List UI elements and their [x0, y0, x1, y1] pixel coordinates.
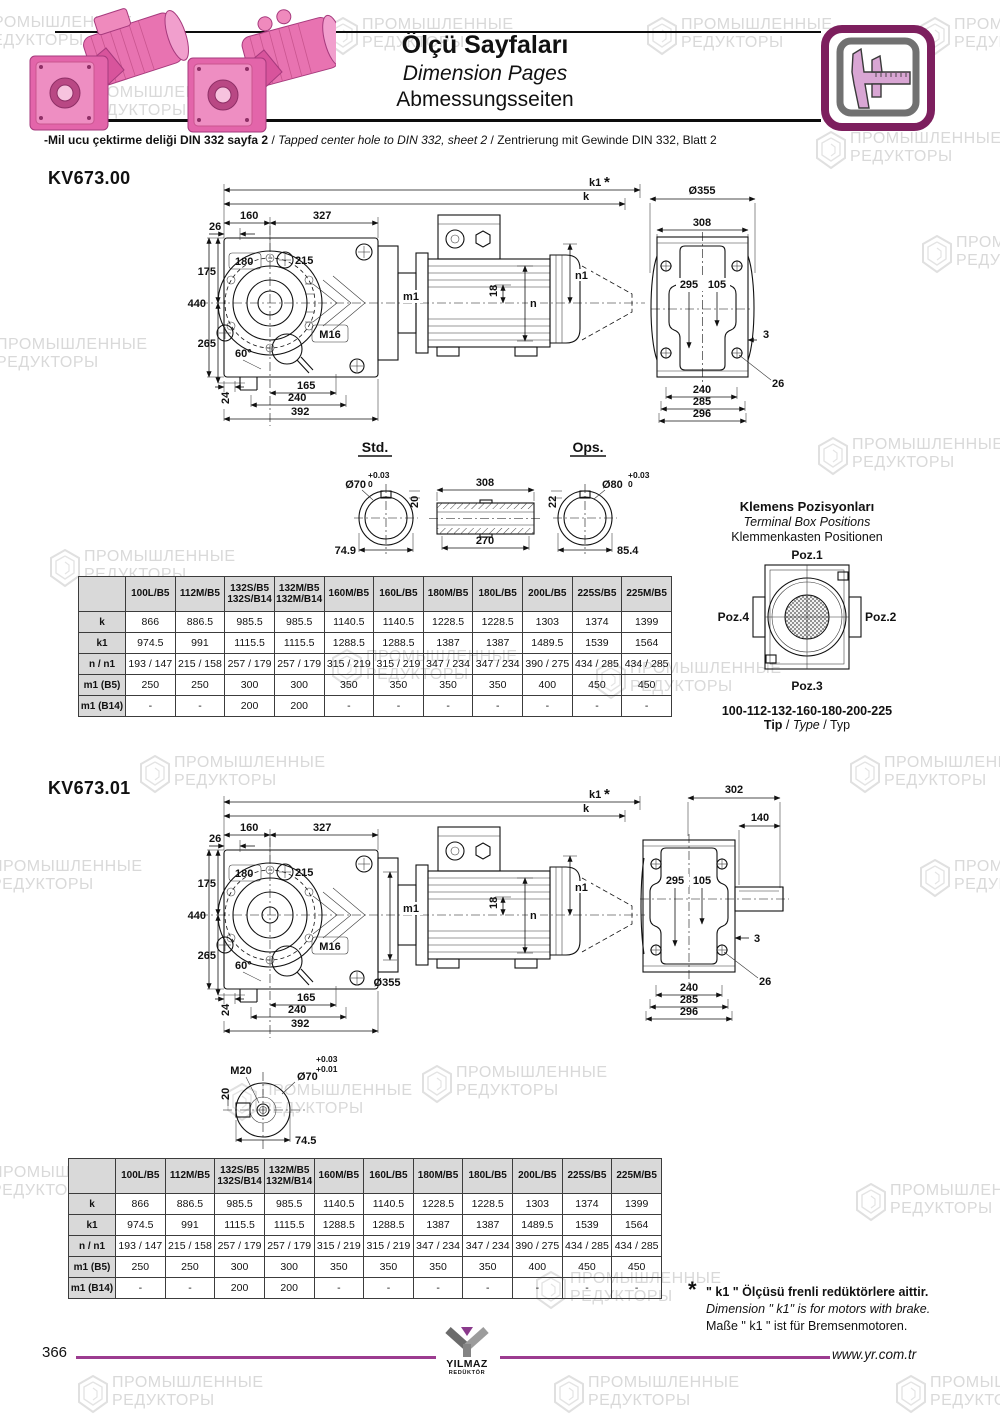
table-cell: 1115.5: [215, 1215, 265, 1236]
kv67300-side-drawing: Ø355 308 295 105 3 26 240 285 296: [645, 178, 800, 430]
table-cell: 400: [523, 675, 573, 696]
kv67301-shaft-detail-drawing: M20 20 Ø70 +0.03 +0.01 74.5: [185, 1040, 430, 1155]
svg-text:105: 105: [693, 875, 711, 887]
table-cell: 1564: [622, 633, 672, 654]
table-cell: 315 / 219: [364, 1236, 414, 1257]
table-cell: 350: [463, 1257, 513, 1278]
svg-text:24: 24: [220, 1003, 232, 1016]
column-header: 160L/B5: [364, 1159, 414, 1194]
column-header: 200L/B5: [523, 577, 573, 612]
svg-text:302: 302: [725, 784, 743, 796]
dimension-table-kv67301: 100L/B5112M/B5132S/B5 132S/B14132M/B5 13…: [68, 1158, 662, 1299]
table-cell: 1288.5: [324, 633, 374, 654]
column-header: 132S/B5 132S/B14: [225, 577, 275, 612]
svg-text:327: 327: [313, 210, 331, 222]
column-header: 200L/B5: [513, 1159, 563, 1194]
svg-text:Ø80: Ø80: [602, 479, 623, 491]
table-cell: 350: [473, 675, 523, 696]
watermark-text: ПРОМЫШЛЕННЫЕ РЕДУКТОРЫ: [890, 1182, 1000, 1218]
table-cell: 985.5: [225, 612, 275, 633]
table-cell: 200: [264, 1278, 314, 1299]
watermark-hexagon-icon: [918, 858, 952, 898]
watermark-text: ПРОМЫШЛЕННЫЕ РЕДУКТОРЫ: [0, 858, 143, 894]
table-cell: -: [413, 1278, 463, 1299]
row-label: m1 (B5): [79, 675, 126, 696]
svg-text:M16: M16: [319, 329, 340, 341]
svg-text:18: 18: [488, 285, 500, 297]
table-cell: 350: [374, 675, 424, 696]
svg-text:240: 240: [693, 384, 711, 396]
table-cell: 434 / 285: [622, 654, 672, 675]
watermark-text: ПРОМЫШЛЕННЫЕ РЕДУКТОРЫ: [956, 234, 1000, 270]
watermark-hexagon-icon: [48, 548, 82, 588]
terminal-type-line: Tip / Type / Typ: [712, 718, 902, 732]
svg-text:327: 327: [313, 822, 331, 834]
watermark: ПРОМЫШЛЕННЫЕ РЕДУКТОРЫ: [920, 234, 1000, 274]
column-header: 225S/B5: [562, 1159, 612, 1194]
table-cell: 1387: [423, 633, 473, 654]
row-label: n / n1: [79, 654, 126, 675]
svg-text:74.9: 74.9: [335, 545, 356, 557]
table-cell: 1228.5: [473, 612, 523, 633]
svg-text:k: k: [583, 191, 590, 203]
watermark: ПРОМЫШЛЕННЫЕ РЕДУКТОРЫ: [552, 1374, 740, 1414]
terminal-box-positions: Klemens Pozisyonları Terminal Box Positi…: [712, 499, 902, 732]
svg-text:k1: k1: [589, 789, 601, 801]
column-header: 132S/B5 132S/B14: [215, 1159, 265, 1194]
table-cell: 1303: [513, 1194, 563, 1215]
svg-text:18: 18: [488, 897, 500, 909]
table-cell: 193 / 147: [126, 654, 176, 675]
watermark: ПРОМЫШЛЕННЫЕ РЕДУКТОРЫ: [894, 1374, 1000, 1414]
svg-text:M16: M16: [319, 941, 340, 953]
table-cell: 390 / 275: [513, 1236, 563, 1257]
table-row: m1 (B14)--200200-------: [69, 1278, 662, 1299]
gearmotor-unit-2: [188, 4, 336, 132]
svg-text:YILMAZ: YILMAZ: [446, 1358, 488, 1370]
svg-text:240: 240: [288, 1004, 306, 1016]
svg-text:+0.01: +0.01: [316, 1064, 338, 1074]
svg-text:0: 0: [628, 479, 633, 489]
table-cell: -: [324, 696, 374, 717]
table-cell: -: [562, 1278, 612, 1299]
table-cell: 257 / 179: [225, 654, 275, 675]
watermark-text: ПРОМЫШЛЕННЫЕ РЕДУКТОРЫ: [852, 436, 1000, 472]
watermark: ПРОМЫШЛЕННЫЕ РЕДУКТОРЫ: [76, 1374, 264, 1414]
svg-text:24: 24: [220, 391, 232, 404]
table-cell: -: [175, 696, 225, 717]
dimension-table-kv67300: 100L/B5112M/B5132S/B5 132S/B14132M/B5 13…: [78, 576, 672, 717]
watermark-text: ПРОМЫШЛЕННЫЕ РЕДУКТОРЫ: [456, 1064, 608, 1100]
yilmaz-logo: YILMAZ REDÜKTÖR: [438, 1326, 496, 1376]
table-cell: 1140.5: [314, 1194, 364, 1215]
table-cell: 257 / 179: [215, 1236, 265, 1257]
din-note-de: Zentrierung mit Gewinde DIN 332, Blatt 2: [497, 133, 716, 147]
table-cell: 390 / 275: [523, 654, 573, 675]
svg-text:3: 3: [754, 933, 760, 945]
table-cell: 315 / 219: [374, 654, 424, 675]
table-cell: 450: [612, 1257, 662, 1278]
table-cell: 200: [215, 1278, 265, 1299]
page-title-block: Ölçü Sayfaları Dimension Pages Abmessung…: [330, 30, 640, 114]
svg-text:265: 265: [198, 338, 216, 350]
svg-text:140: 140: [751, 812, 769, 824]
svg-text:m1: m1: [403, 291, 419, 303]
kv67301-front-drawing: 180 215 M16 60° k1 * k 160: [185, 788, 650, 1046]
table-cell: 200: [274, 696, 324, 717]
svg-text:26: 26: [759, 976, 771, 988]
row-label: k: [79, 612, 126, 633]
table-cell: 1140.5: [374, 612, 424, 633]
model-heading-kv67301: KV673.01: [48, 778, 130, 799]
table-cell: 347 / 234: [473, 654, 523, 675]
watermark-hexagon-icon: [854, 1182, 888, 1222]
watermark-text: ПРОМЫШЛЕННЫЕ РЕДУКТОРЫ: [112, 1374, 264, 1410]
svg-text:240: 240: [680, 982, 698, 994]
model-heading-kv67300: KV673.00: [48, 168, 130, 189]
watermark-text: ПРОМЫШЛЕННЫЕ РЕДУКТОРЫ: [850, 130, 1000, 166]
table-cell: -: [572, 696, 622, 717]
row-label: k: [69, 1194, 116, 1215]
table-row: m1 (B5)250250300300350350350350400450450: [79, 675, 672, 696]
table-cell: 347 / 234: [413, 1236, 463, 1257]
table-cell: 886.5: [165, 1194, 215, 1215]
svg-text:285: 285: [680, 994, 698, 1006]
table-cell: -: [126, 696, 176, 717]
footnote-de: Maße " k1 " ist für Bremsenmotoren.: [706, 1318, 986, 1335]
svg-text:105: 105: [708, 279, 726, 291]
table-cell: 450: [622, 675, 672, 696]
watermark-hexagon-icon: [848, 754, 882, 794]
svg-text:175: 175: [198, 266, 216, 278]
column-header: 160L/B5: [374, 577, 424, 612]
watermark-hexagon-icon: [76, 1374, 110, 1414]
table-cell: 347 / 234: [463, 1236, 513, 1257]
svg-text:M20: M20: [230, 1065, 251, 1077]
din-note-en: Tapped center hole to DIN 332, sheet 2: [278, 133, 487, 147]
row-label: n / n1: [69, 1236, 116, 1257]
poz4-label: Poz.4: [718, 610, 750, 624]
watermark: ПРОМЫШЛЕННЫЕ РЕДУКТОРЫ: [854, 1182, 1000, 1222]
svg-text:60°: 60°: [235, 960, 252, 972]
svg-text:26: 26: [772, 378, 784, 390]
watermark-hexagon-icon: [645, 16, 679, 56]
table-cell: 350: [324, 675, 374, 696]
table-cell: 450: [562, 1257, 612, 1278]
svg-text:392: 392: [291, 1018, 309, 1030]
poz1-label: Poz.1: [791, 548, 823, 562]
footnote-en: Dimension " k1" is for motors with brake…: [706, 1301, 986, 1318]
table-cell: 1374: [562, 1194, 612, 1215]
svg-text:+0.03: +0.03: [316, 1054, 338, 1064]
svg-text:160: 160: [240, 210, 258, 222]
table-cell: 350: [423, 675, 473, 696]
gearmotor-unit-1: [30, 4, 193, 130]
watermark-text: ПРОМЫШЛЕННЫЕ РЕДУКТОРЫ: [174, 754, 326, 790]
svg-text:Ø355: Ø355: [689, 185, 716, 197]
din-note-tr: -Mil ucu çektirme deliği DIN 332 sayfa 2: [44, 133, 268, 147]
table-cell: -: [374, 696, 424, 717]
column-header: 160M/B5: [314, 1159, 364, 1194]
svg-text:k: k: [583, 803, 590, 815]
svg-text:265: 265: [198, 950, 216, 962]
svg-text:270: 270: [476, 535, 494, 547]
svg-text:308: 308: [476, 477, 494, 489]
svg-text:296: 296: [680, 1006, 698, 1018]
table-cell: 866: [126, 612, 176, 633]
page-title-en: Dimension Pages: [330, 60, 640, 87]
page-number: 366: [42, 1344, 67, 1361]
table-row: n / n1193 / 147215 / 158257 / 179257 / 1…: [69, 1236, 662, 1257]
svg-text:n1: n1: [575, 270, 588, 282]
gearmotor-photos: [26, 4, 336, 138]
svg-text:*: *: [604, 176, 610, 191]
table-cell: 1387: [463, 1215, 513, 1236]
table-cell: 1387: [473, 633, 523, 654]
watermark-text: ПРОМЫШЛЕННЫЕ РЕДУКТОРЫ: [954, 858, 1000, 894]
table-cell: 350: [413, 1257, 463, 1278]
svg-text:26: 26: [209, 833, 221, 845]
column-header: 180L/B5: [473, 577, 523, 612]
table-cell: 200: [225, 696, 275, 717]
terminal-position-drawing: Poz.1 Poz.2 Poz.3 Poz.4: [717, 547, 897, 697]
ops-label: Ops.: [572, 439, 603, 455]
svg-text:k1: k1: [589, 177, 601, 189]
svg-text:285: 285: [693, 396, 711, 408]
table-cell: 1399: [622, 612, 672, 633]
watermark: ПРОМЫШЛЕННЫЕ РЕДУКТОРЫ: [645, 16, 833, 56]
table-cell: -: [523, 696, 573, 717]
table-cell: 991: [165, 1215, 215, 1236]
row-label: k1: [69, 1215, 116, 1236]
svg-text:60°: 60°: [235, 348, 252, 360]
table-cell: 434 / 285: [562, 1236, 612, 1257]
column-header: 225M/B5: [612, 1159, 662, 1194]
svg-text:REDÜKTÖR: REDÜKTÖR: [449, 1369, 486, 1376]
table-cell: -: [423, 696, 473, 717]
svg-text:180: 180: [235, 868, 253, 880]
column-header: 160M/B5: [324, 577, 374, 612]
watermark-text: ПРОМЫШЛЕННЫЕ РЕДУКТОРЫ: [588, 1374, 740, 1410]
watermark-hexagon-icon: [138, 754, 172, 794]
svg-text:n1: n1: [575, 882, 588, 894]
watermark: ПРОМЫШЛЕННЫЕ РЕДУКТОРЫ: [0, 858, 143, 898]
row-label: m1 (B5): [69, 1257, 116, 1278]
svg-text:74.5: 74.5: [295, 1135, 316, 1147]
footnote: * " k1 " Ölçüsü frenli redüktörlere aitt…: [690, 1284, 986, 1335]
svg-text:215: 215: [295, 867, 313, 879]
column-header: 225S/B5: [572, 577, 622, 612]
svg-text:295: 295: [666, 875, 684, 887]
table-cell: -: [165, 1278, 215, 1299]
svg-text:240: 240: [288, 392, 306, 404]
page-title-de: Abmessungsseiten: [330, 87, 640, 113]
svg-text:Ø355: Ø355: [374, 977, 401, 989]
table-cell: 1115.5: [274, 633, 324, 654]
table-cell: -: [463, 1278, 513, 1299]
table-cell: 985.5: [264, 1194, 314, 1215]
table-cell: 1539: [572, 633, 622, 654]
table-cell: 400: [513, 1257, 563, 1278]
footer-rule-left: [76, 1356, 436, 1359]
table-corner-cell: [69, 1159, 116, 1194]
table-cell: 250: [116, 1257, 166, 1278]
watermark: ПРОМЫШЛЕННЫЕ РЕДУКТОРЫ: [848, 754, 1000, 794]
terminal-sizes: 100-112-132-160-180-200-225: [712, 704, 902, 718]
watermark-hexagon-icon: [552, 1374, 586, 1414]
svg-text:392: 392: [291, 406, 309, 418]
table-cell: 1303: [523, 612, 573, 633]
svg-text:26: 26: [209, 221, 221, 233]
svg-text:m1: m1: [403, 903, 419, 915]
row-label: m1 (B14): [79, 696, 126, 717]
table-cell: 1288.5: [374, 633, 424, 654]
catalog-page: Ölçü Sayfaları Dimension Pages Abmessung…: [0, 0, 1000, 1414]
column-header: 180M/B5: [413, 1159, 463, 1194]
table-cell: 193 / 147: [116, 1236, 166, 1257]
table-cell: 1228.5: [423, 612, 473, 633]
table-cell: 991: [175, 633, 225, 654]
table-cell: 300: [215, 1257, 265, 1278]
watermark-hexagon-icon: [920, 234, 954, 274]
table-cell: 974.5: [116, 1215, 166, 1236]
table-cell: 257 / 179: [264, 1236, 314, 1257]
table-cell: 300: [225, 675, 275, 696]
column-header: 132M/B5 132M/B14: [264, 1159, 314, 1194]
row-label: k1: [79, 633, 126, 654]
table-cell: 1115.5: [225, 633, 275, 654]
table-cell: 866: [116, 1194, 166, 1215]
table-cell: 1140.5: [364, 1194, 414, 1215]
column-header: 180M/B5: [423, 577, 473, 612]
column-header: 100L/B5: [126, 577, 176, 612]
svg-text:308: 308: [693, 217, 711, 229]
kv67300-shaft-options-drawing: Std. 20 Ø70 +0.03 0 74.9 308 270 Ops. 22: [330, 438, 715, 565]
table-cell: 350: [314, 1257, 364, 1278]
std-label: Std.: [362, 439, 388, 455]
column-header: 132M/B5 132M/B14: [274, 577, 324, 612]
svg-text:165: 165: [297, 992, 315, 1004]
watermark: ПРОМЫШЛЕННЫЕ РЕДУКТОРЫ: [420, 1064, 608, 1104]
svg-text:440: 440: [188, 298, 206, 310]
table-cell: 350: [364, 1257, 414, 1278]
svg-text:n: n: [530, 910, 537, 922]
table-corner-cell: [79, 577, 126, 612]
table-cell: -: [473, 696, 523, 717]
caliper-icon: [820, 24, 936, 134]
watermark-hexagon-icon: [894, 1374, 928, 1414]
table-cell: 434 / 285: [572, 654, 622, 675]
page-title: Ölçü Sayfaları: [330, 30, 640, 60]
table-row: k1974.59911115.51115.51288.51288.5138713…: [79, 633, 672, 654]
watermark: ПРОМЫШЛЕННЫЕ РЕДУКТОРЫ: [816, 436, 1000, 476]
table-row: k866886.5985.5985.51140.51140.51228.5122…: [79, 612, 672, 633]
watermark-text: ПРОМЫШЛЕННЫЕ РЕДУКТОРЫ: [954, 16, 1000, 52]
kv67300-front-drawing: 180 215 M16 60° k1 *: [185, 176, 650, 434]
watermark-text: ПРОМЫШЛЕННЫЕ РЕДУКТОРЫ: [681, 16, 833, 52]
terminal-title-tr: Klemens Pozisyonları: [712, 499, 902, 515]
svg-text:20: 20: [220, 1088, 232, 1100]
svg-text:296: 296: [693, 408, 711, 420]
table-cell: 1288.5: [364, 1215, 414, 1236]
table-cell: -: [364, 1278, 414, 1299]
column-header: 225M/B5: [622, 577, 672, 612]
table-cell: 1387: [413, 1215, 463, 1236]
table-cell: -: [314, 1278, 364, 1299]
svg-text:0: 0: [368, 479, 373, 489]
footnote-star: *: [688, 1277, 697, 1303]
svg-text:165: 165: [297, 380, 315, 392]
table-cell: 250: [165, 1257, 215, 1278]
svg-text:20: 20: [409, 496, 421, 508]
poz3-label: Poz.3: [791, 679, 823, 693]
svg-text:3: 3: [763, 329, 769, 341]
svg-text:n: n: [530, 298, 537, 310]
footnote-tr: " k1 " Ölçüsü frenli redüktörlere aittir…: [706, 1284, 986, 1301]
table-row: n / n1193 / 147215 / 158257 / 179257 / 1…: [79, 654, 672, 675]
table-cell: 215 / 158: [175, 654, 225, 675]
terminal-title-de: Klemmenkasten Positionen: [712, 530, 902, 545]
footer-rule-right: [500, 1356, 830, 1359]
website-url: www.yr.com.tr: [832, 1347, 916, 1362]
column-header: 112M/B5: [165, 1159, 215, 1194]
table-cell: 215 / 158: [165, 1236, 215, 1257]
table-cell: 1564: [612, 1215, 662, 1236]
svg-text:215: 215: [295, 255, 313, 267]
table-cell: 985.5: [215, 1194, 265, 1215]
table-cell: 257 / 179: [274, 654, 324, 675]
table-cell: -: [612, 1278, 662, 1299]
table-cell: 434 / 285: [612, 1236, 662, 1257]
poz2-label: Poz.2: [865, 610, 897, 624]
table-cell: 1115.5: [264, 1215, 314, 1236]
table-cell: 347 / 234: [423, 654, 473, 675]
svg-text:160: 160: [240, 822, 258, 834]
svg-text:85.4: 85.4: [617, 545, 639, 557]
table-cell: 1228.5: [463, 1194, 513, 1215]
watermark-text: ПРОМЫШЛЕННЫЕ РЕДУКТОРЫ: [930, 1374, 1000, 1410]
watermark-text: ПРОМЫШЛЕННЫЕ РЕДУКТОРЫ: [0, 336, 148, 372]
svg-text:180: 180: [235, 256, 253, 268]
table-row: m1 (B14)--200200-------: [79, 696, 672, 717]
watermark: ПРОМЫШЛЕННЫЕ РЕДУКТОРЫ: [918, 858, 1000, 898]
table-row: m1 (B5)250250300300350350350350400450450: [69, 1257, 662, 1278]
svg-text:295: 295: [680, 279, 698, 291]
table-cell: 1399: [612, 1194, 662, 1215]
terminal-title-en: Terminal Box Positions: [712, 515, 902, 530]
table-cell: 886.5: [175, 612, 225, 633]
watermark-hexagon-icon: [814, 130, 848, 170]
svg-text:175: 175: [198, 878, 216, 890]
watermark: ПРОМЫШЛЕННЫЕ РЕДУКТОРЫ: [814, 130, 1000, 170]
table-cell: -: [513, 1278, 563, 1299]
table-cell: 315 / 219: [314, 1236, 364, 1257]
table-cell: 250: [126, 675, 176, 696]
svg-text:Ø70: Ø70: [345, 479, 366, 491]
table-row: k866886.5985.5985.51140.51140.51228.5122…: [69, 1194, 662, 1215]
column-header: 180L/B5: [463, 1159, 513, 1194]
svg-text:440: 440: [188, 910, 206, 922]
row-label: m1 (B14): [69, 1278, 116, 1299]
din-note: -Mil ucu çektirme deliği DIN 332 sayfa 2…: [44, 133, 717, 147]
table-cell: 1489.5: [523, 633, 573, 654]
table-cell: 1288.5: [314, 1215, 364, 1236]
table-cell: 250: [175, 675, 225, 696]
svg-text:*: *: [604, 788, 610, 803]
column-header: 100L/B5: [116, 1159, 166, 1194]
table-row: k1974.59911115.51115.51288.51288.5138713…: [69, 1215, 662, 1236]
kv67301-side-drawing: 302 140 295 105 3 26 240 285 296: [640, 778, 790, 1038]
